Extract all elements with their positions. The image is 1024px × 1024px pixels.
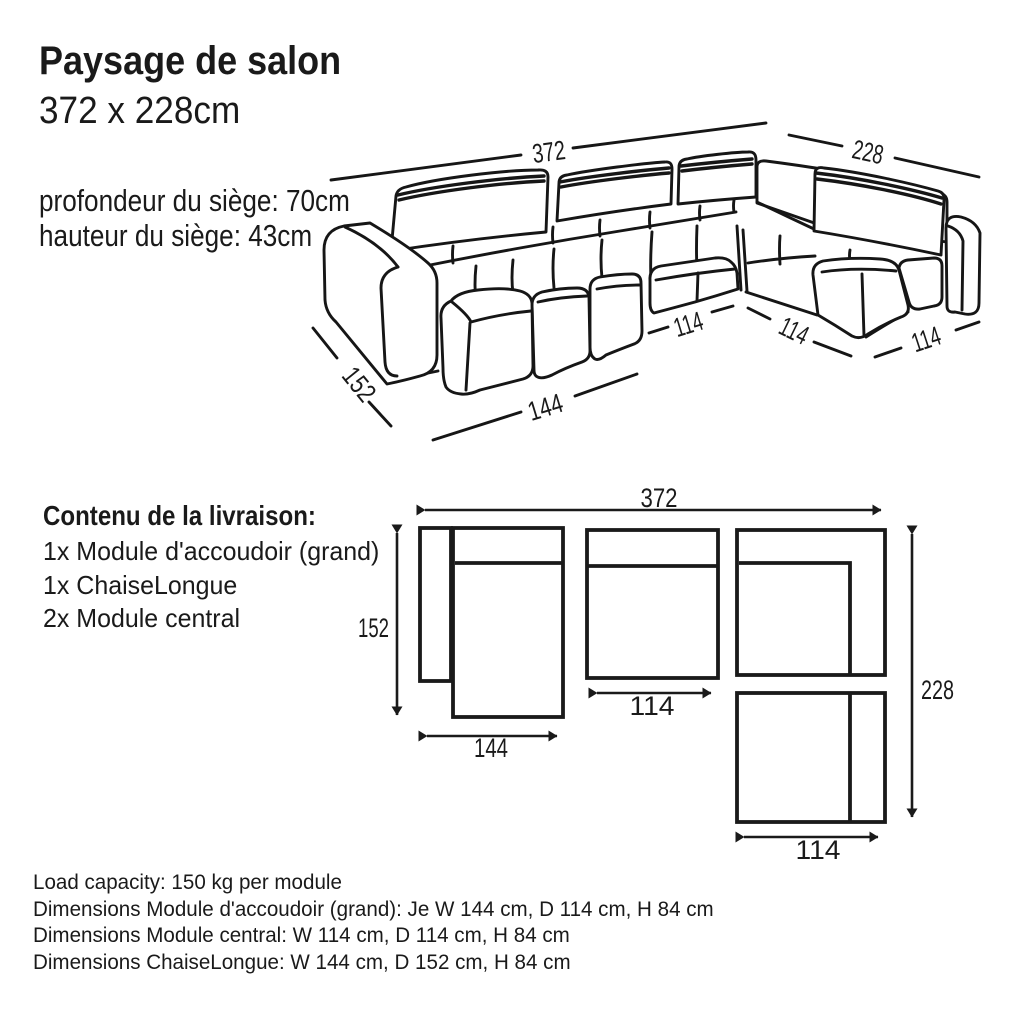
svg-text:152: 152 [358,613,389,643]
svg-text:372: 372 [531,135,568,169]
svg-text:144: 144 [524,388,566,427]
svg-text:114: 114 [908,321,945,358]
svg-text:114: 114 [670,306,707,343]
svg-text:228: 228 [850,134,887,170]
svg-text:114: 114 [774,311,813,351]
svg-text:228: 228 [921,675,954,705]
svg-text:144: 144 [474,733,508,763]
svg-text:114: 114 [630,691,675,721]
svg-text:114: 114 [796,835,841,865]
svg-text:372: 372 [641,483,678,513]
